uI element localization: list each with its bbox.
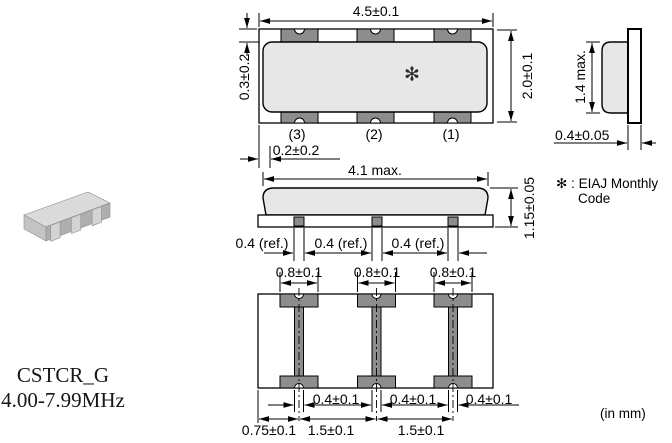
product-series: CSTCR_G [17,363,109,388]
front-view-terminal [294,217,304,226]
dim-pad-width-1: 0.8±0.1 [276,264,323,280]
component-photo [24,192,110,241]
terminal-label-3: (3) [288,126,305,142]
dim-cap-offset-top: 0.3±0.2 [236,54,252,101]
dim-overall-height: 2.0±0.1 [519,53,535,100]
dim-electrode-width-2: 0.4±0.1 [390,391,437,407]
datasheet-dimension-drawing: 4.5±0.1 2.0±0.1 0.3±0.2 0.2±0.2 (3) (2) … [0,0,672,443]
dim-edge-to-first-electrode: 0.75±0.1 [242,422,296,438]
dim-max-height: 1.4 max. [572,50,588,104]
product-frequency-range: 4.00-7.99MHz [1,388,125,413]
dim-substrate-thickness: 0.4±0.05 [555,127,609,143]
units-note: (in mm) [600,406,646,422]
side-view-cap [602,42,629,113]
side-view-substrate [628,29,641,123]
dim-electrode-width-1: 0.4±0.1 [313,391,360,407]
dim-total-height: 1.15±0.05 [521,177,537,239]
dim-cap-offset-side: 0.2±0.2 [273,142,320,158]
front-view-terminal [372,217,382,226]
dim-pad-width-3: 0.8±0.1 [430,264,477,280]
dim-pitch-1: 1.5±0.1 [308,422,355,438]
top-view-cap [263,42,487,112]
eiaj-marking-asterisk-icon: ✻ [404,66,420,85]
dim-overall-width: 4.5±0.1 [353,3,400,19]
marking-note-line2: Code [578,191,610,207]
terminal-label-2: (2) [365,126,382,142]
dim-terminal-width-ref-1: 0.4 (ref.) [236,235,289,251]
terminal-label-1: (1) [442,126,459,142]
front-view [258,172,518,261]
front-view-terminal [448,217,458,226]
front-view-cap [263,188,488,215]
dim-terminal-width-ref-3: 0.4 (ref.) [392,235,445,251]
dim-cap-width: 4.1 max. [348,162,402,178]
dim-terminal-width-ref-2: 0.4 (ref.) [315,235,368,251]
marking-note-line1: ✻ : EIAJ Monthly [556,176,658,192]
dim-electrode-width-3: 0.4±0.1 [466,391,513,407]
dim-pitch-2: 1.5±0.1 [398,422,445,438]
dim-pad-width-2: 0.8±0.1 [354,264,401,280]
